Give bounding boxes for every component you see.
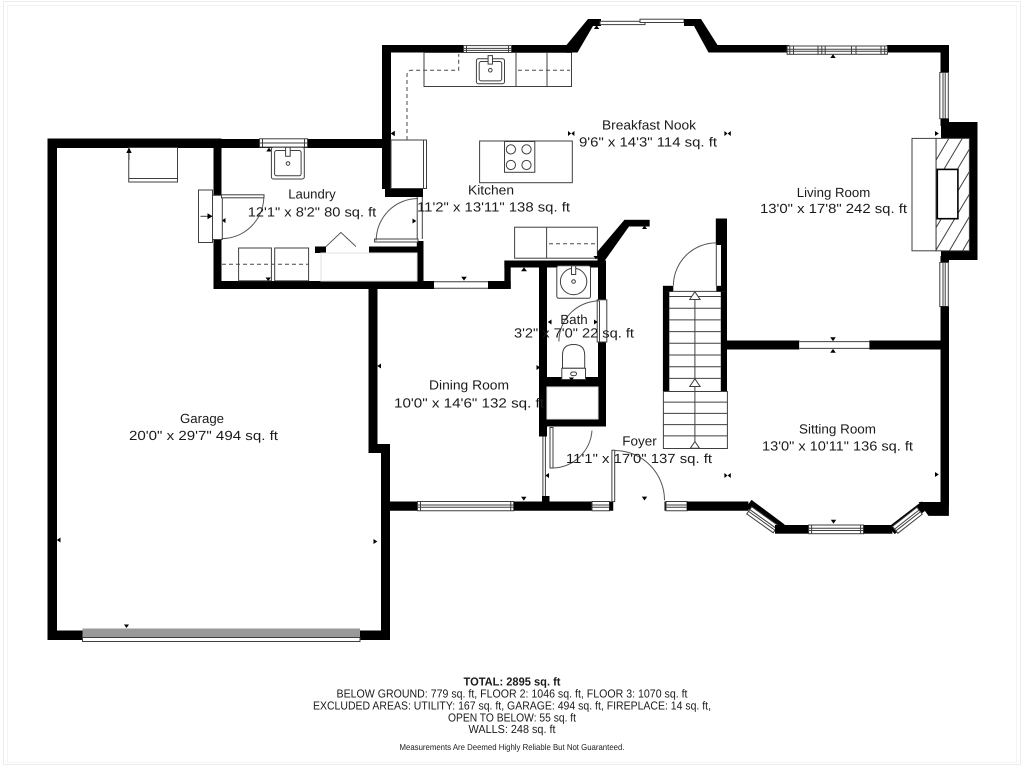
svg-text:Living Room: Living Room bbox=[797, 185, 871, 200]
svg-text:Dining Room: Dining Room bbox=[429, 378, 509, 393]
svg-text:Kitchen: Kitchen bbox=[468, 183, 514, 198]
svg-text:11'1" x 17'0" 137 sq. ft: 11'1" x 17'0" 137 sq. ft bbox=[566, 451, 712, 466]
svg-text:3'2" x 7'0" 22 sq. ft: 3'2" x 7'0" 22 sq. ft bbox=[514, 326, 634, 341]
svg-text:WALLS: 248 sq. ft: WALLS: 248 sq. ft bbox=[469, 723, 557, 736]
svg-text:20'0" x 29'7" 494 sq. ft: 20'0" x 29'7" 494 sq. ft bbox=[129, 428, 278, 443]
svg-text:12'1" x 8'2" 80 sq. ft: 12'1" x 8'2" 80 sq. ft bbox=[248, 205, 377, 220]
svg-text:Breakfast Nook: Breakfast Nook bbox=[602, 118, 696, 133]
svg-text:Measurements Are Deemed Highly: Measurements Are Deemed Highly Reliable … bbox=[400, 742, 625, 752]
svg-text:9'6" x 14'3" 114 sq. ft: 9'6" x 14'3" 114 sq. ft bbox=[579, 135, 717, 150]
svg-text:13'0" x 17'8" 242 sq. ft: 13'0" x 17'8" 242 sq. ft bbox=[760, 201, 907, 216]
svg-text:Garage: Garage bbox=[180, 411, 224, 426]
svg-text:Foyer: Foyer bbox=[622, 434, 657, 449]
svg-text:10'0" x 14'6" 132 sq. ft: 10'0" x 14'6" 132 sq. ft bbox=[394, 396, 544, 411]
svg-text:Sitting Room: Sitting Room bbox=[799, 422, 876, 437]
svg-text:Laundry: Laundry bbox=[288, 187, 336, 202]
svg-text:11'2" x 13'11" 138 sq. ft: 11'2" x 13'11" 138 sq. ft bbox=[417, 200, 570, 215]
svg-text:13'0" x 10'11" 136 sq. ft: 13'0" x 10'11" 136 sq. ft bbox=[762, 439, 913, 454]
